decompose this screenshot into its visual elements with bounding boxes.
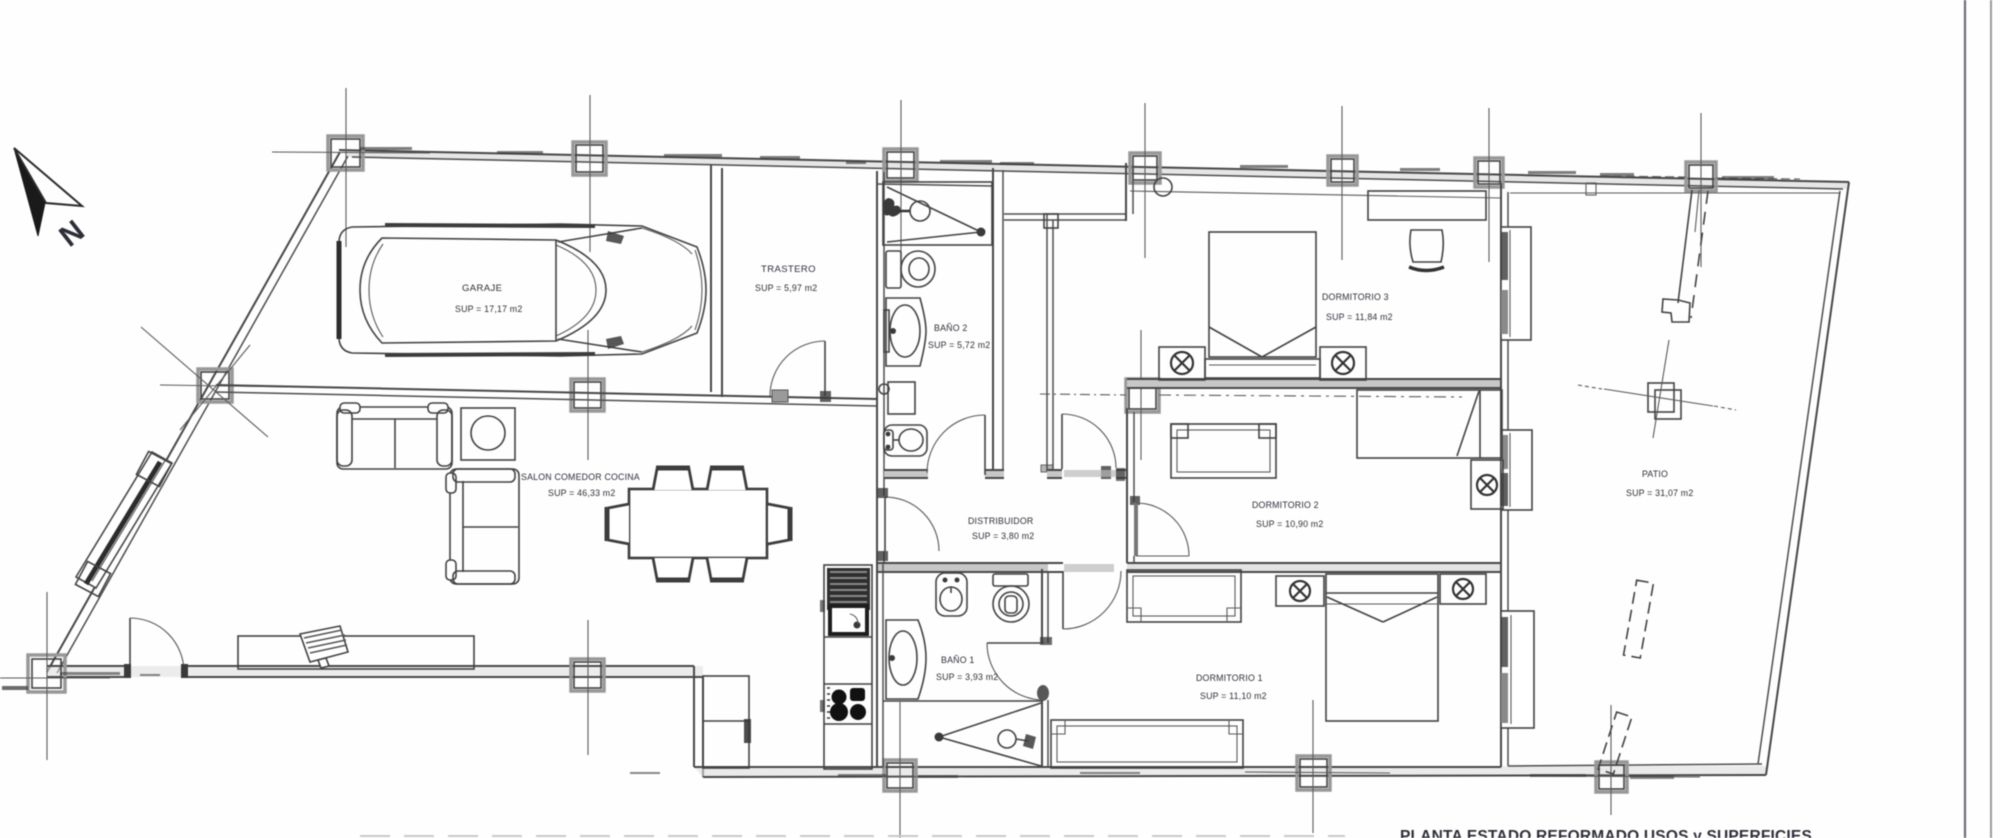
- svg-text:DORMITORIO 1: DORMITORIO 1: [1196, 673, 1263, 683]
- svg-text:TRASTERO: TRASTERO: [761, 264, 816, 275]
- svg-text:N: N: [53, 214, 90, 253]
- svg-text:SUP = 31,07 m2: SUP = 31,07 m2: [1626, 488, 1693, 498]
- svg-text:SUP = 46,33 m2: SUP = 46,33 m2: [548, 488, 615, 498]
- svg-text:SUP = 11,84 m2: SUP = 11,84 m2: [1326, 312, 1393, 322]
- svg-text:DORMITORIO 2: DORMITORIO 2: [1252, 500, 1319, 510]
- svg-text:SUP = 5,72 m2: SUP = 5,72 m2: [928, 340, 990, 350]
- svg-text:SUP = 11,10 m2: SUP = 11,10 m2: [1200, 691, 1267, 701]
- svg-text:DISTRIBUIDOR: DISTRIBUIDOR: [968, 516, 1033, 526]
- svg-text:PLANTA ESTADO REFORMADO USOS y: PLANTA ESTADO REFORMADO USOS y SUPERFICI…: [1400, 828, 1812, 838]
- svg-text:SUP = 5,97 m2: SUP = 5,97 m2: [755, 283, 817, 293]
- svg-text:SALON COMEDOR COCINA: SALON COMEDOR COCINA: [521, 472, 640, 482]
- svg-text:GARAJE: GARAJE: [462, 283, 502, 294]
- svg-text:SUP = 3,93 m2: SUP = 3,93 m2: [936, 672, 998, 682]
- svg-text:BAÑO 1: BAÑO 1: [941, 655, 974, 665]
- svg-text:BAÑO 2: BAÑO 2: [934, 323, 967, 333]
- svg-text:SUP = 3,80 m2: SUP = 3,80 m2: [972, 531, 1034, 541]
- svg-text:SUP = 17,17 m2: SUP = 17,17 m2: [455, 304, 522, 314]
- svg-text:SUP = 10,90 m2: SUP = 10,90 m2: [1256, 519, 1323, 529]
- svg-text:DORMITORIO 3: DORMITORIO 3: [1322, 292, 1389, 302]
- svg-text:PATIO: PATIO: [1642, 469, 1668, 479]
